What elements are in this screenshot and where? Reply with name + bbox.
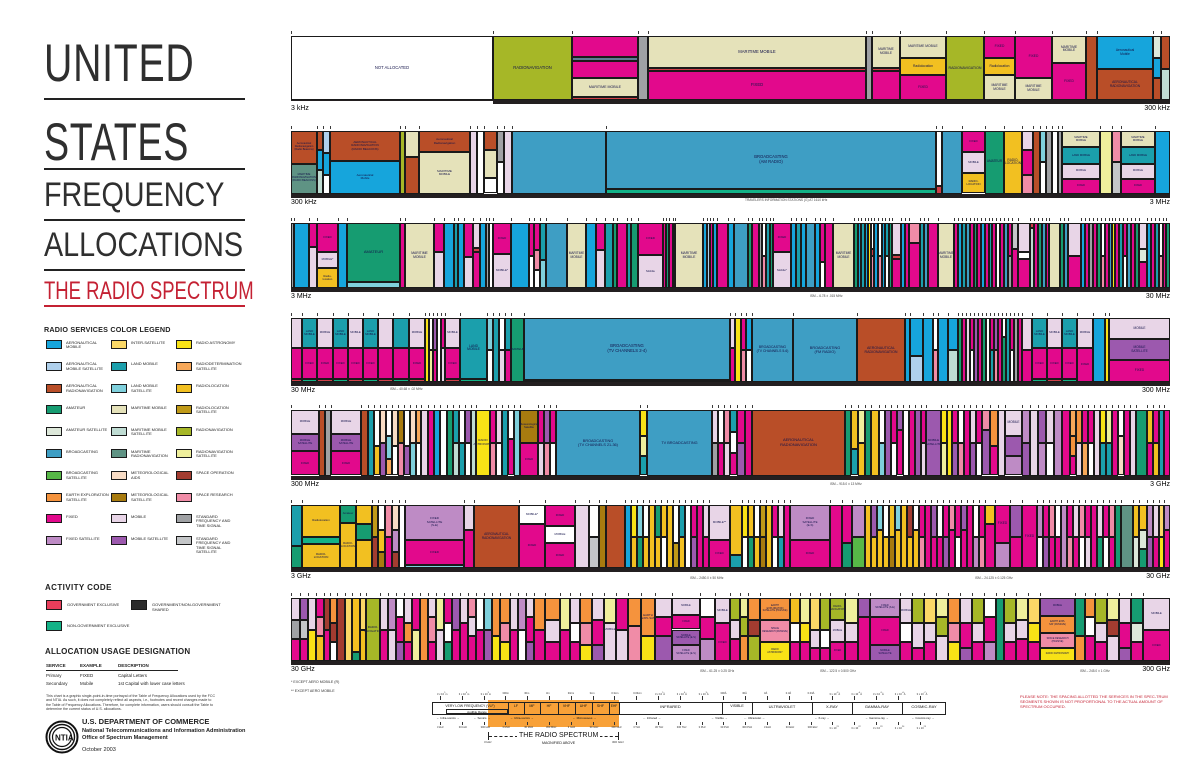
svg-text:NTIA: NTIA (55, 734, 74, 743)
